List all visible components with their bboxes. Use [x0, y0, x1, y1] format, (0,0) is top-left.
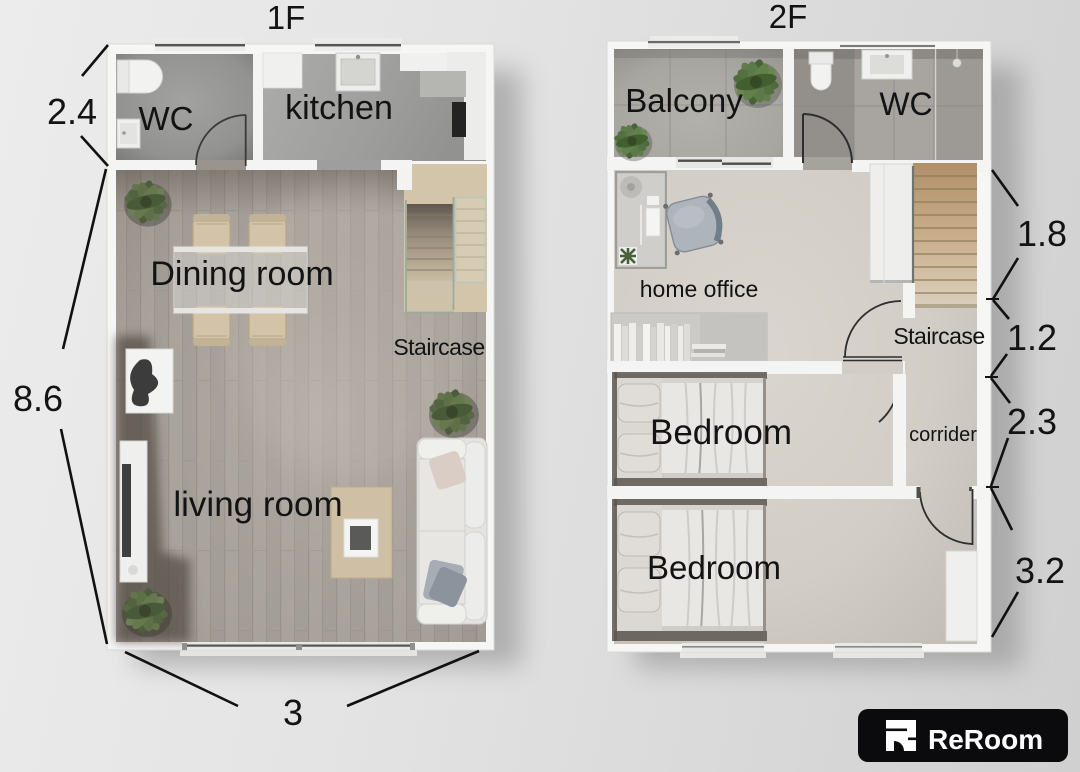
- svg-text:Dining room: Dining room: [150, 255, 333, 293]
- svg-text:3: 3: [283, 692, 303, 733]
- svg-text:Bedroom: Bedroom: [650, 413, 792, 452]
- svg-text:8.6: 8.6: [13, 378, 63, 419]
- svg-text:1F: 1F: [267, 0, 306, 36]
- svg-text:Bedroom: Bedroom: [647, 549, 781, 586]
- svg-text:ReRoom: ReRoom: [928, 724, 1043, 755]
- svg-text:Staircase: Staircase: [393, 334, 484, 360]
- svg-text:corrider: corrider: [909, 424, 977, 446]
- svg-text:2.4: 2.4: [47, 91, 97, 132]
- svg-text:3.2: 3.2: [1015, 550, 1065, 591]
- svg-text:kitchen: kitchen: [285, 89, 393, 127]
- svg-text:living room: living room: [173, 485, 342, 524]
- svg-text:WC: WC: [139, 100, 194, 137]
- svg-text:1.2: 1.2: [1007, 317, 1057, 358]
- svg-text:2.3: 2.3: [1007, 401, 1057, 442]
- svg-text:Staircase: Staircase: [893, 323, 984, 349]
- svg-text:WC: WC: [879, 86, 932, 122]
- svg-text:2F: 2F: [769, 0, 808, 35]
- svg-text:1.8: 1.8: [1017, 213, 1067, 254]
- svg-text:home office: home office: [640, 276, 758, 302]
- svg-text:Balcony: Balcony: [625, 82, 743, 119]
